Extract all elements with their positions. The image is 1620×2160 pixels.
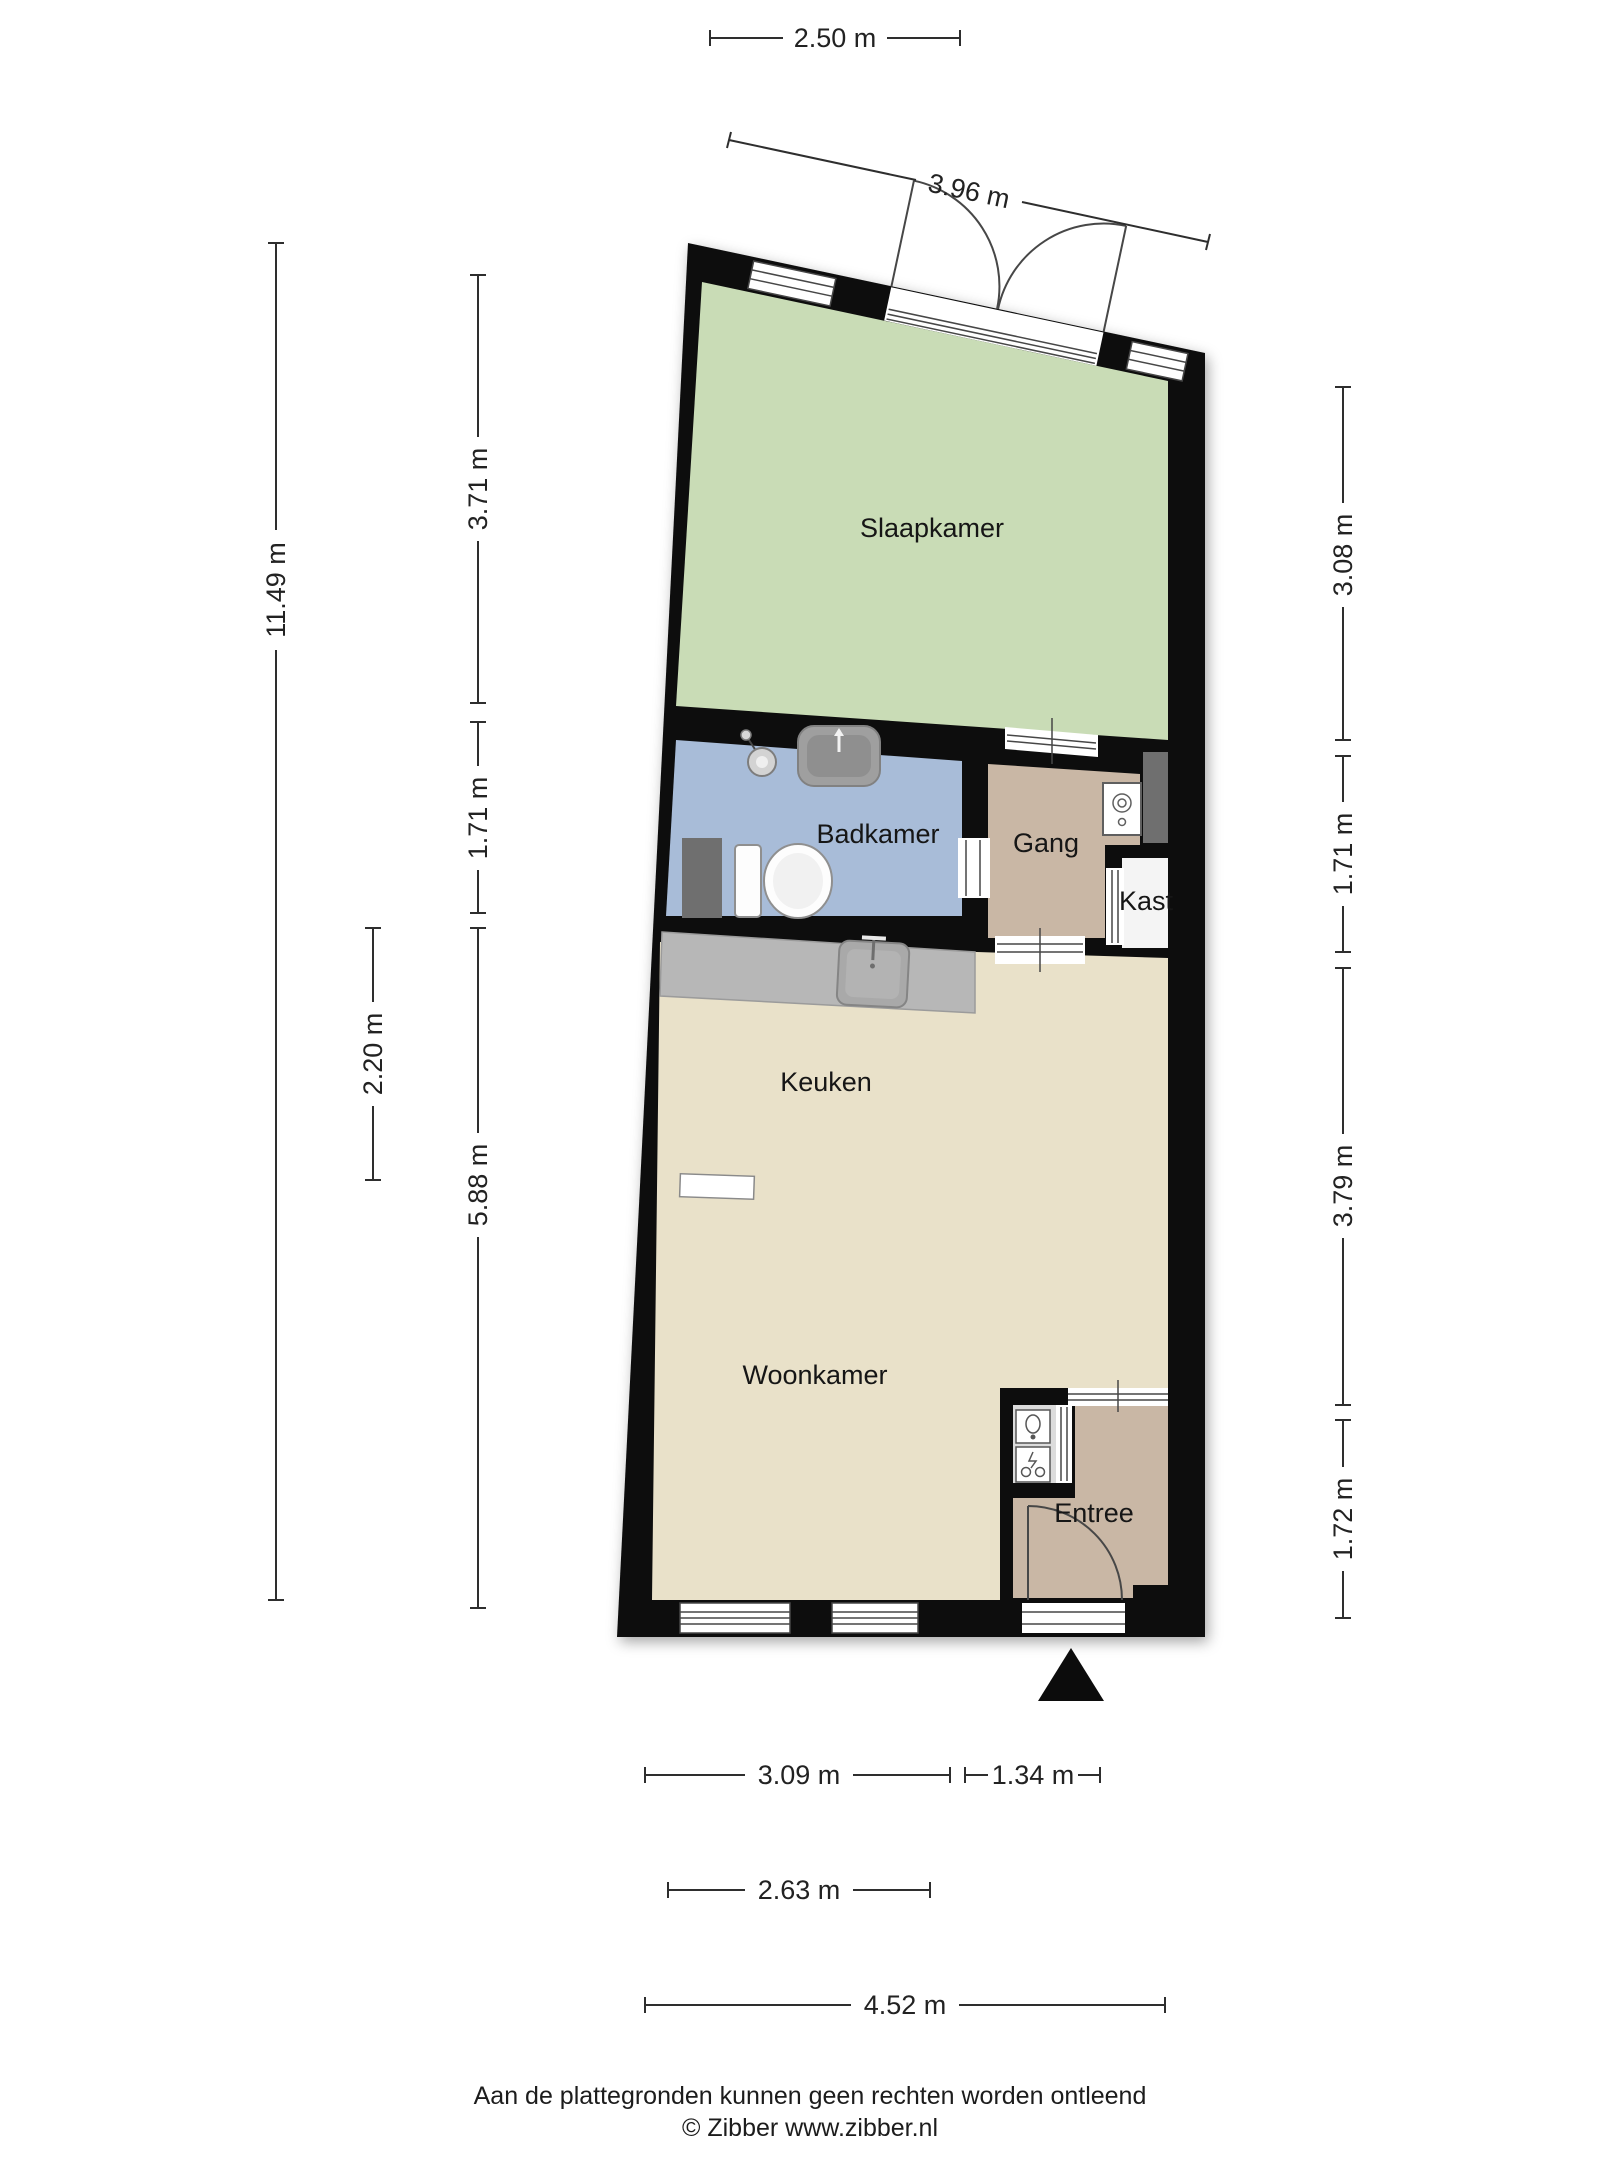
door-meter-closet bbox=[1056, 1405, 1072, 1483]
boiler-icon bbox=[1103, 783, 1141, 835]
bathroom-shaft bbox=[682, 838, 722, 918]
footer-copyright: © Zibber www.zibber.nl bbox=[682, 2114, 938, 2142]
kitchen-sink-icon bbox=[836, 936, 909, 1008]
door-badkamer-gang bbox=[958, 838, 990, 898]
dim-right-woonkamer: 3.79 m bbox=[1328, 1145, 1358, 1228]
dim-right-gang: 1.71 m bbox=[1328, 813, 1358, 896]
dim-bottom-woonkamer: 3.09 m bbox=[758, 1760, 841, 1790]
label-slaapkamer: Slaapkamer bbox=[860, 513, 1004, 543]
dim-right-entree: 1.72 m bbox=[1328, 1478, 1358, 1561]
label-woonkamer: Woonkamer bbox=[742, 1360, 887, 1390]
dim-left-badkamer: 1.71 m bbox=[463, 777, 493, 860]
floorplan-page: 2.50 m 3.96 m 11.49 m 3.71 m 1.71 m 2.20… bbox=[0, 0, 1620, 2160]
dim-top-wall: 3.96 m bbox=[926, 168, 1013, 215]
floorplan-canvas: 2.50 m 3.96 m 11.49 m 3.71 m 1.71 m 2.20… bbox=[0, 0, 1620, 2160]
dim-left-total: 11.49 m bbox=[261, 542, 291, 638]
label-keuken: Keuken bbox=[780, 1067, 872, 1097]
label-gang: Gang bbox=[1013, 828, 1079, 858]
label-entree: Entree bbox=[1054, 1498, 1134, 1528]
toilet-icon bbox=[735, 844, 832, 918]
dim-left-woonkamer: 5.88 m bbox=[463, 1144, 493, 1227]
dim-bottom-total: 4.52 m bbox=[864, 1990, 947, 2020]
footer: Aan de plattegronden kunnen geen rechten… bbox=[474, 2082, 1147, 2142]
dim-top-width: 2.50 m bbox=[794, 23, 877, 53]
dim-left-slaapkamer: 3.71 m bbox=[463, 448, 493, 531]
window bbox=[832, 1603, 918, 1633]
footer-disclaimer: Aan de plattegronden kunnen geen rechten… bbox=[474, 2082, 1147, 2110]
dimline-left-total bbox=[268, 243, 284, 1600]
dim-bottom-inner: 2.63 m bbox=[758, 1875, 841, 1905]
window bbox=[680, 1603, 790, 1633]
bathroom-sink-icon bbox=[798, 726, 880, 786]
label-badkamer: Badkamer bbox=[816, 819, 939, 849]
entrance-arrow-icon bbox=[1038, 1648, 1104, 1701]
dimline-left-woonkamer bbox=[470, 928, 486, 1608]
radiator bbox=[680, 1174, 755, 1200]
dim-right-slaapkamer: 3.08 m bbox=[1328, 514, 1358, 597]
label-kast: Kast bbox=[1119, 886, 1174, 916]
shaft bbox=[1143, 752, 1168, 843]
dim-bottom-entree: 1.34 m bbox=[992, 1760, 1075, 1790]
dim-left-keuken: 2.20 m bbox=[358, 1013, 388, 1096]
